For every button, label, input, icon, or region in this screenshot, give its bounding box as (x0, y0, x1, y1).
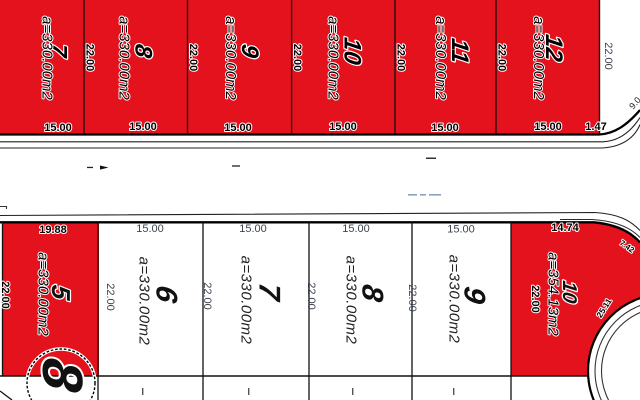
svg-text:15.00: 15.00 (224, 122, 252, 134)
svg-text:10: 10 (339, 36, 366, 67)
svg-text:15.00: 15.00 (239, 223, 267, 235)
svg-text:a=330.00m2: a=330.00m2 (446, 255, 463, 344)
svg-text:22.00: 22.00 (406, 284, 418, 312)
svg-text:a=330.00m2: a=330.00m2 (343, 256, 360, 345)
svg-text:22.00: 22.00 (291, 44, 303, 72)
svg-text:15.00: 15.00 (329, 121, 357, 133)
svg-text:a=330.00m2: a=330.00m2 (116, 16, 133, 100)
svg-text:14.74: 14.74 (551, 222, 579, 234)
svg-text:22.00: 22.00 (84, 44, 96, 72)
svg-text:a=354.13m2: a=354.13m2 (545, 252, 562, 336)
svg-text:11: 11 (446, 37, 473, 66)
svg-text:15.00: 15.00 (44, 122, 72, 134)
svg-text:1.47: 1.47 (585, 121, 606, 133)
svg-text:22.00: 22.00 (201, 282, 213, 310)
svg-text:a=330.00m2: a=330.00m2 (530, 16, 547, 100)
svg-text:a=330.00m2: a=330.00m2 (136, 257, 153, 346)
svg-text:15.00: 15.00 (447, 224, 475, 236)
svg-text:19.88: 19.88 (39, 224, 67, 236)
svg-text:a=330.00m2: a=330.00m2 (432, 16, 449, 100)
svg-text:a=330.00m2: a=330.00m2 (39, 16, 56, 100)
svg-text:22.00: 22.00 (395, 44, 407, 72)
svg-text:a=330.00m2: a=330.00m2 (238, 256, 255, 345)
svg-text:a=330.00m2: a=330.00m2 (222, 16, 239, 100)
svg-text:15.00: 15.00 (534, 121, 562, 133)
svg-text:a=330.00m2: a=330.00m2 (35, 252, 52, 336)
svg-text:22.00: 22.00 (496, 44, 508, 72)
svg-text:22.00: 22.00 (529, 285, 541, 313)
svg-text:15.00: 15.00 (136, 223, 164, 235)
svg-text:22.00: 22.00 (0, 281, 11, 309)
svg-text:22.00: 22.00 (104, 283, 116, 311)
svg-text:22.00: 22.00 (187, 44, 199, 72)
svg-text:22.00: 22.00 (305, 282, 317, 310)
svg-text:15.00: 15.00 (342, 223, 370, 235)
svg-text:15.00: 15.00 (431, 122, 459, 134)
svg-text:22.00: 22.00 (602, 42, 614, 70)
svg-text:a=330.00m2: a=330.00m2 (325, 16, 342, 100)
svg-text:15.00: 15.00 (129, 121, 157, 133)
